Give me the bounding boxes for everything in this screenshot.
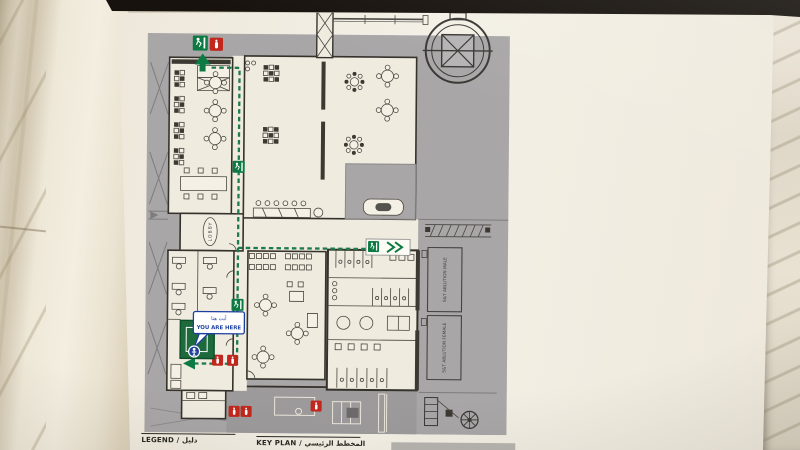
key-plan-heading: KEY PLAN / المخطط الرئيسي bbox=[256, 436, 360, 448]
dining-hall bbox=[168, 57, 232, 214]
roof-line bbox=[333, 15, 428, 25]
storage-room bbox=[182, 390, 226, 418]
ablution-male-label: S&T ABLUTION MALE bbox=[442, 257, 448, 302]
lobby-room: LOBBY bbox=[180, 213, 243, 251]
lobby-label: LOBBY bbox=[208, 222, 214, 242]
evacuation-poster: LOBBY bbox=[112, 0, 774, 450]
toilet-block bbox=[327, 250, 420, 391]
seating-room bbox=[247, 251, 326, 380]
fire-extinguisher-icon bbox=[210, 38, 223, 51]
photo-of-evacuation-map: LOBBY bbox=[0, 0, 800, 450]
exit-banner bbox=[366, 239, 410, 255]
fire-extinguisher-icon bbox=[229, 406, 240, 417]
ablution-female-label: S&T ABLUTION FEMALE bbox=[441, 322, 447, 372]
exit-sign-icon bbox=[233, 161, 245, 173]
fan-icon bbox=[461, 411, 478, 428]
marble-wall-left bbox=[0, 0, 128, 450]
exit-sign-icon bbox=[368, 241, 379, 252]
you-are-here-pin bbox=[189, 346, 200, 357]
you-are-here-arabic: أنت هنا bbox=[211, 314, 227, 322]
exit-sign-icon bbox=[193, 35, 208, 50]
legend-heading: LEGEND / دليل bbox=[141, 433, 235, 445]
fire-extinguisher-icon bbox=[311, 400, 322, 411]
floor-plan: LOBBY bbox=[136, 8, 512, 435]
key-plan-thumbnail bbox=[391, 442, 515, 450]
service-shaft bbox=[317, 12, 333, 58]
you-are-here-english: YOU ARE HERE bbox=[196, 325, 242, 331]
exit-sign-icon bbox=[231, 299, 243, 311]
poster-content: LOBBY bbox=[108, 0, 774, 450]
fire-extinguisher-icon bbox=[227, 355, 238, 366]
cafeteria-hall bbox=[243, 56, 416, 219]
fire-extinguisher-icon bbox=[241, 406, 252, 417]
